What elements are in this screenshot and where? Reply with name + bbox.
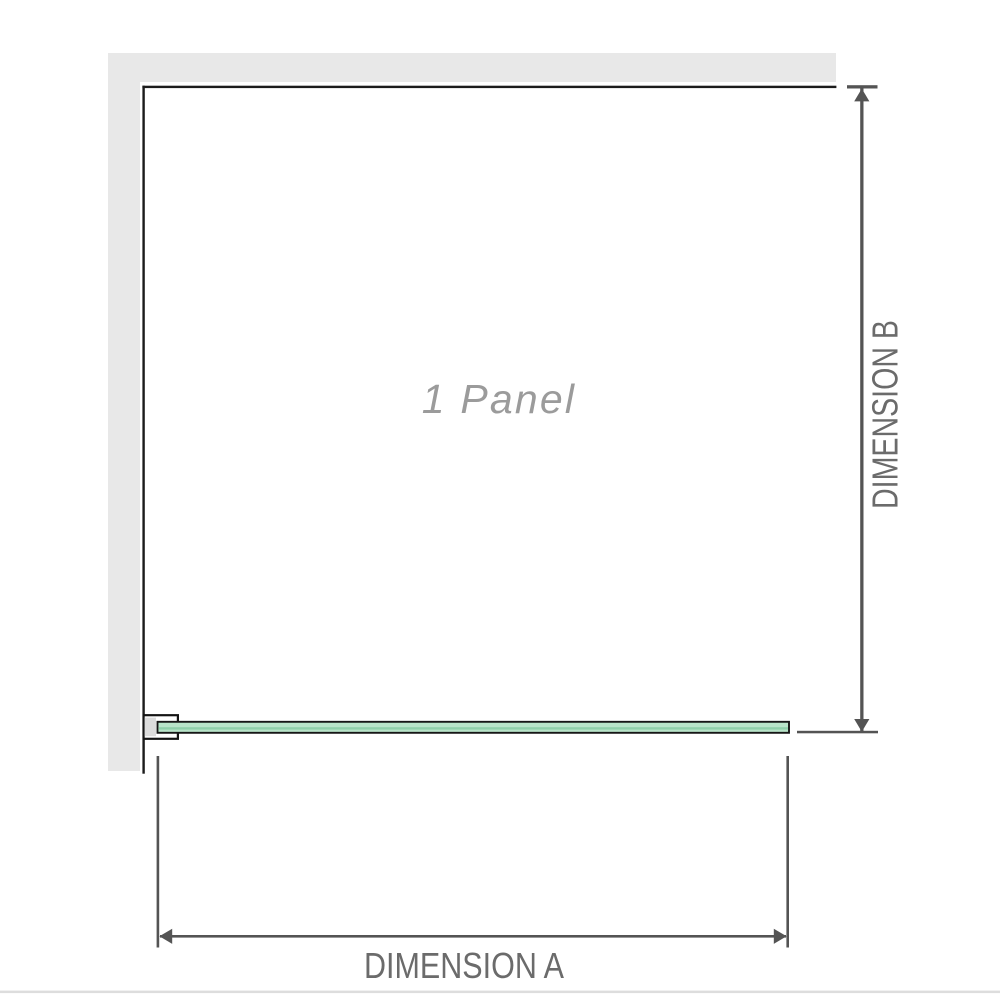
svg-text:1 Panel: 1 Panel: [422, 376, 576, 422]
svg-text:DIMENSION A: DIMENSION A: [364, 945, 564, 986]
svg-text:DIMENSION B: DIMENSION B: [865, 320, 906, 509]
